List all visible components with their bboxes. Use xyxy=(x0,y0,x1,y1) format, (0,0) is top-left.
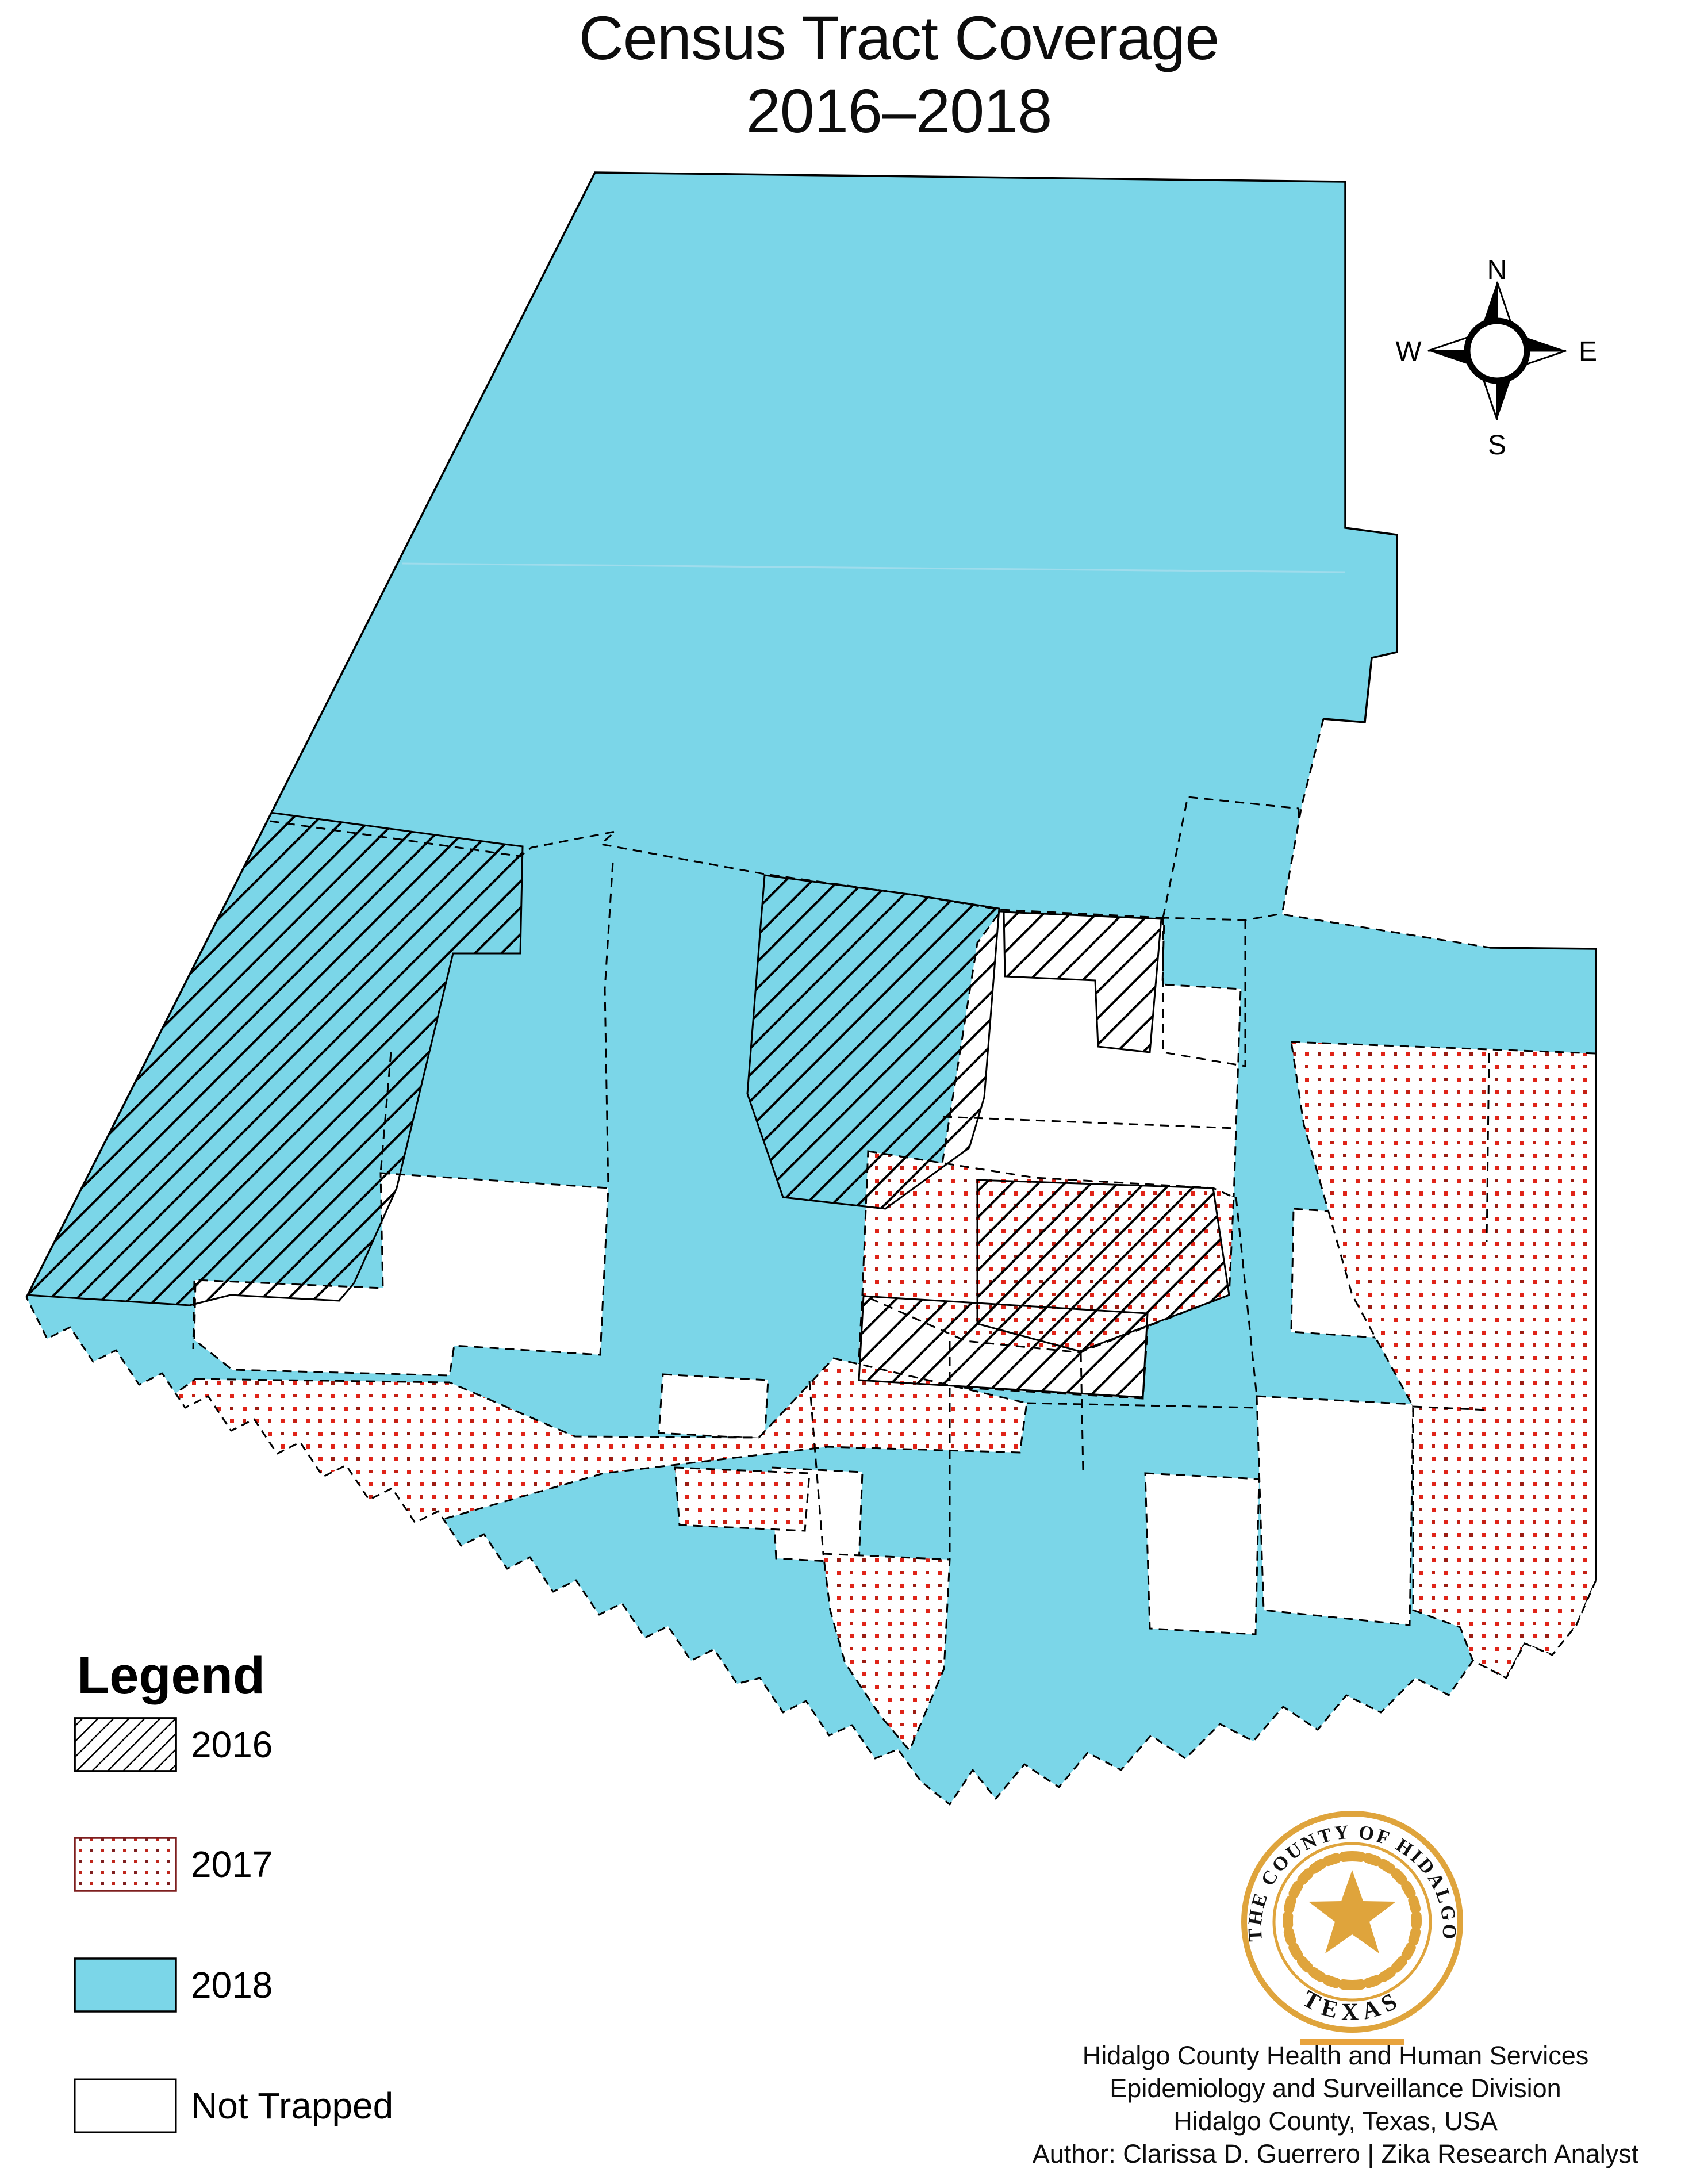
compass-arrow-west xyxy=(1428,351,1467,364)
compass-circle xyxy=(1467,321,1527,381)
compass-arrow-south xyxy=(1497,381,1510,420)
county-seal: THE COUNTY OF HIDALGO TEXAS xyxy=(1244,1814,1460,2045)
legend-swatch-2017 xyxy=(75,1838,176,1891)
compass-label-east: E xyxy=(1579,336,1597,367)
legend-swatches xyxy=(75,1718,176,2132)
page-title: Census Tract Coverage 2016–2018 xyxy=(98,1,1700,147)
compass-arrow-east-half xyxy=(1527,351,1566,364)
tract-region-not-trapped xyxy=(1257,1396,1413,1625)
compass-arrow-north xyxy=(1484,282,1497,321)
legend-swatch-not-trapped xyxy=(75,2079,176,2132)
legend-item-label-not-trapped: Not Trapped xyxy=(191,2079,393,2132)
county-tract-regions xyxy=(0,144,1700,1840)
compass-label-north: N xyxy=(1487,255,1507,286)
legend-item-label-2018: 2018 xyxy=(191,1959,273,2011)
attribution-line2: Epidemiology and Surveillance Division xyxy=(977,2072,1694,2105)
map-poster-page: { "title": { "line1": "Census Tract Cove… xyxy=(0,0,1700,2184)
legend-swatch-2018 xyxy=(75,1959,176,2011)
compass-arrow-north-half xyxy=(1497,282,1510,321)
compass-arrow-west-half xyxy=(1428,338,1467,351)
tract-region-not-trapped xyxy=(1145,1473,1259,1634)
compass-arrow-east xyxy=(1527,338,1566,351)
legend-item-label-2016: 2016 xyxy=(191,1718,273,1771)
tract-region-not-trapped xyxy=(659,1374,768,1439)
legend-item-label-2017: 2017 xyxy=(191,1838,273,1891)
tract-region-2017-small xyxy=(675,1468,809,1531)
attribution-line4: Author: Clarissa D. Guerrero | Zika Rese… xyxy=(977,2137,1694,2170)
legend-heading: Legend xyxy=(77,1649,265,1702)
attribution-block: Hidalgo County Health and Human Services… xyxy=(977,2039,1694,2170)
compass-label-south: S xyxy=(1488,430,1506,461)
tract-region-2016-south-band xyxy=(859,1296,1148,1397)
compass-arrow-south-half xyxy=(1484,381,1497,420)
attribution-line1: Hidalgo County Health and Human Services xyxy=(977,2039,1694,2072)
compass-label-west: W xyxy=(1395,336,1422,367)
legend-swatch-2016 xyxy=(75,1718,176,1771)
page-title-line1: Census Tract Coverage xyxy=(98,1,1700,74)
page-title-line2: 2016–2018 xyxy=(98,74,1700,147)
compass-rose: N S E W xyxy=(1395,255,1597,461)
attribution-line3: Hidalgo County, Texas, USA xyxy=(977,2105,1694,2137)
